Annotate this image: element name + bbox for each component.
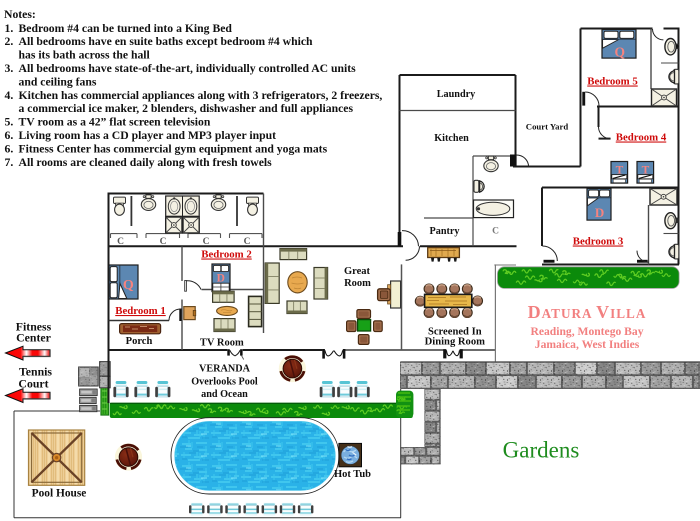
svg-text:C: C — [492, 227, 499, 237]
svg-text:Bedroom 4: Bedroom 4 — [616, 132, 667, 144]
svg-text:Q: Q — [123, 278, 134, 293]
svg-text:Living room has a CD player an: Living room has a CD player and MP3 play… — [19, 129, 277, 142]
svg-text:Overlooks Pool: Overlooks Pool — [191, 377, 258, 388]
svg-text:Bedroom 3: Bedroom 3 — [573, 236, 624, 248]
svg-text:Court Yard: Court Yard — [526, 122, 569, 132]
svg-text:All rooms are cleaned daily al: All rooms are cleaned daily along with f… — [19, 156, 273, 169]
svg-text:Bedroom #4 can be turned into: Bedroom #4 can be turned into a King Bed — [19, 22, 233, 35]
svg-text:Gardens: Gardens — [503, 438, 580, 463]
svg-text:All bedrooms have en suite bat: All bedrooms have en suite baths except … — [19, 35, 314, 48]
svg-text:5.: 5. — [5, 116, 14, 129]
svg-text:Kitchen: Kitchen — [434, 133, 469, 144]
svg-text:C: C — [117, 237, 124, 247]
svg-text:C: C — [160, 237, 167, 247]
svg-text:Fitness Center has commercial: Fitness Center has commercial gym equipm… — [19, 142, 328, 155]
svg-text:6.: 6. — [5, 142, 14, 155]
svg-text:TV Room: TV Room — [200, 338, 244, 349]
svg-text:Laundry: Laundry — [437, 89, 476, 100]
svg-text:Dining Room: Dining Room — [425, 336, 486, 347]
svg-text:Notes:: Notes: — [4, 8, 36, 21]
svg-text:1.: 1. — [5, 22, 14, 35]
svg-text:C: C — [203, 237, 210, 247]
svg-text:and ceiling fans: and ceiling fans — [19, 75, 97, 88]
svg-text:D: D — [595, 205, 604, 220]
svg-text:T: T — [616, 165, 624, 177]
svg-text:Porch: Porch — [126, 336, 153, 347]
svg-text:2.: 2. — [5, 35, 14, 48]
svg-text:T: T — [642, 165, 650, 177]
svg-text:Pool House: Pool House — [32, 488, 87, 500]
svg-text:VERANDA: VERANDA — [199, 364, 251, 375]
svg-text:Q: Q — [615, 45, 626, 60]
svg-text:Great: Great — [344, 266, 371, 277]
svg-text:Bedroom 1: Bedroom 1 — [115, 305, 165, 317]
svg-text:6.: 6. — [5, 129, 14, 142]
svg-text:Court: Court — [18, 377, 48, 391]
svg-text:All bedrooms have state-of-the: All bedrooms have state-of-the-art, indi… — [19, 62, 357, 75]
svg-text:3.: 3. — [5, 62, 14, 75]
svg-text:4.: 4. — [5, 89, 14, 102]
svg-text:Kitchen has commercial applian: Kitchen has commercial appliances along … — [19, 89, 383, 102]
svg-text:Reading, Montego Bay: Reading, Montego Bay — [530, 325, 643, 338]
svg-text:Hot Tub: Hot Tub — [334, 469, 371, 480]
svg-text:TV room as a 42” flat screen t: TV room as a 42” flat screen television — [19, 116, 211, 129]
svg-text:Center: Center — [16, 331, 51, 345]
svg-text:D: D — [217, 272, 225, 284]
svg-text:Bedroom 2: Bedroom 2 — [201, 249, 251, 261]
svg-text:and Ocean: and Ocean — [201, 389, 248, 400]
svg-text:Bedroom 5: Bedroom 5 — [587, 76, 637, 88]
svg-text:a commercial ice maker, 2 blen: a commercial ice maker, 2 blenders, dish… — [19, 102, 354, 115]
svg-text:Pantry: Pantry — [430, 226, 460, 237]
svg-text:Room: Room — [344, 278, 371, 289]
svg-text:C: C — [244, 237, 251, 247]
svg-text:Jamaica, West Indies: Jamaica, West Indies — [535, 338, 640, 351]
svg-text:has its bath across the hall: has its bath across the hall — [19, 49, 151, 62]
svg-text:7.: 7. — [5, 156, 14, 169]
